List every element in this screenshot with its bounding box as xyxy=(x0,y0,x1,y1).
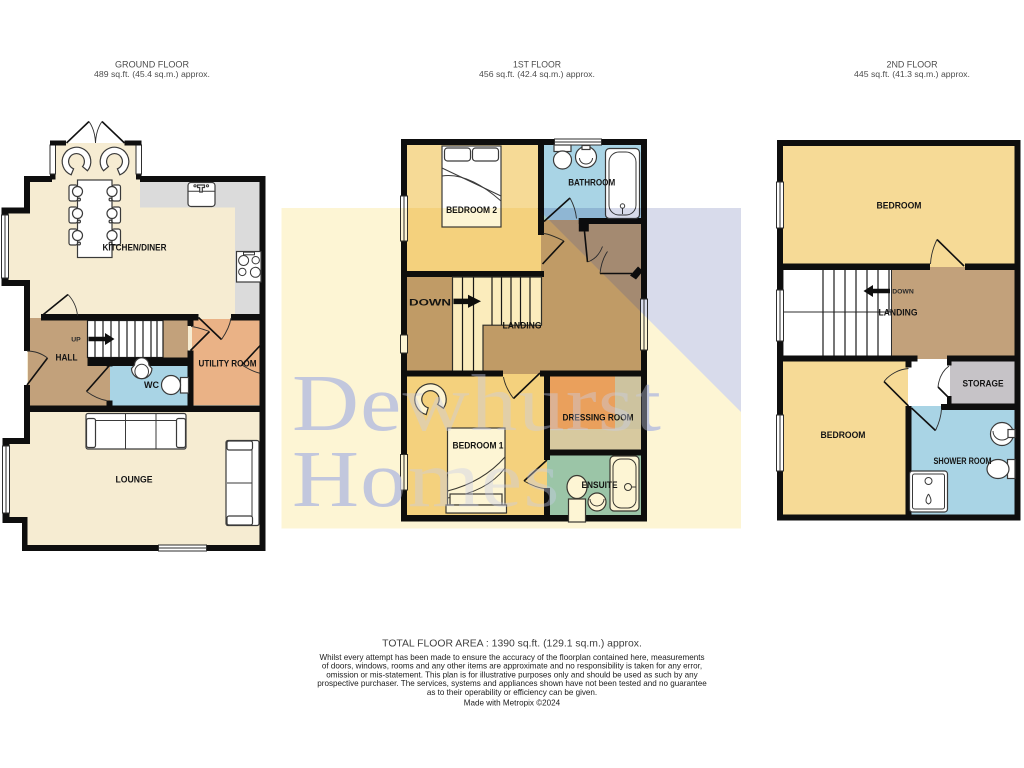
svg-text:Whilst every attempt has been: Whilst every attempt has been made to en… xyxy=(319,653,704,662)
svg-text:LANDING: LANDING xyxy=(879,308,918,319)
svg-text:KITCHEN/DINER: KITCHEN/DINER xyxy=(103,243,167,254)
svg-text:445 sq.ft. (41.3 sq.m.) approx: 445 sq.ft. (41.3 sq.m.) approx. xyxy=(854,69,970,79)
svg-text:BEDROOM: BEDROOM xyxy=(877,201,922,212)
svg-text:HALL: HALL xyxy=(56,353,78,364)
svg-text:UTILITY ROOM: UTILITY ROOM xyxy=(199,359,257,370)
svg-text:UP: UP xyxy=(71,337,81,344)
svg-text:DOWN: DOWN xyxy=(892,289,914,296)
svg-text:LOUNGE: LOUNGE xyxy=(116,475,153,486)
svg-text:of doors, windows, rooms and a: of doors, windows, rooms and any other i… xyxy=(322,662,702,671)
svg-text:omission or mis-statement. Thi: omission or mis-statement. This plan is … xyxy=(326,670,698,679)
svg-text:STORAGE: STORAGE xyxy=(963,379,1004,390)
svg-text:WC: WC xyxy=(144,380,159,391)
svg-text:456 sq.ft. (42.4 sq.m.) approx: 456 sq.ft. (42.4 sq.m.) approx. xyxy=(479,69,595,79)
svg-text:as to their operability or eff: as to their operability or efficiency ca… xyxy=(427,688,597,697)
svg-text:SHOWER ROOM: SHOWER ROOM xyxy=(934,456,992,467)
svg-text:BEDROOM: BEDROOM xyxy=(821,430,866,441)
svg-text:prospective purchaser. The ser: prospective purchaser. The services, sys… xyxy=(317,679,707,688)
svg-text:TOTAL FLOOR AREA : 1390 sq.ft.: TOTAL FLOOR AREA : 1390 sq.ft. (129.1 sq… xyxy=(382,639,642,650)
svg-text:489 sq.ft. (45.4 sq.m.) approx: 489 sq.ft. (45.4 sq.m.) approx. xyxy=(94,69,210,79)
svg-text:BATHROOM: BATHROOM xyxy=(568,178,615,189)
svg-text:Made with Metropix ©2024: Made with Metropix ©2024 xyxy=(464,699,561,708)
